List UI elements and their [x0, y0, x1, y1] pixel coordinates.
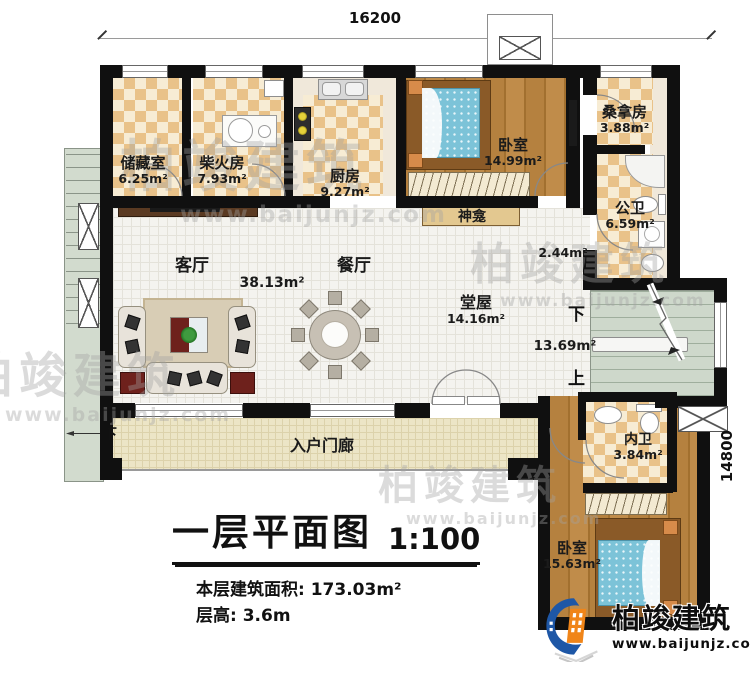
title-info: 本层建筑面积: 173.03m² 层高: 3.6m	[196, 577, 480, 630]
window	[205, 65, 263, 78]
window	[415, 65, 483, 78]
living-area: 38.13m²	[237, 275, 307, 291]
wall	[578, 392, 677, 402]
dining-chair	[328, 365, 342, 379]
top-dimension-value: 16200	[330, 9, 420, 27]
window	[122, 65, 168, 78]
stairs-down-label: 下	[568, 300, 585, 325]
window	[135, 404, 243, 417]
wall	[583, 483, 673, 493]
room-label-inner-bath: 内卫 3.84m²	[598, 432, 678, 462]
room-label-storage: 储藏室 6.25m²	[103, 155, 183, 187]
bedroom-top-area: 14.99m²	[473, 154, 553, 168]
kitchen-area: 9.27m²	[305, 185, 385, 199]
floor-height-line: 层高: 3.6m	[196, 603, 480, 629]
entry-door-leaf	[467, 396, 500, 405]
kitchen-name: 厨房	[305, 168, 385, 185]
plan-scale: 1:100	[388, 522, 480, 556]
bedroom-bottom-name: 卧室	[532, 540, 612, 557]
window	[600, 65, 652, 78]
living-name: 客厅	[162, 257, 222, 277]
plant	[181, 327, 197, 343]
window	[310, 404, 395, 417]
right-dimension-value: 14800	[718, 430, 736, 482]
wardrobe-top	[408, 172, 530, 198]
dining-table-top	[321, 321, 349, 348]
storage-area: 6.25m²	[103, 172, 183, 186]
window	[714, 302, 727, 368]
bedroom-bottom-area: 15.63m²	[532, 557, 612, 571]
tv-panel-hall	[569, 100, 577, 146]
storage-name: 储藏室	[103, 155, 183, 172]
room-label-hallway: 2.44m²	[523, 246, 603, 260]
dining-chair	[328, 291, 342, 305]
flue-xbox-under-stairs	[678, 406, 728, 432]
tv-screen	[150, 208, 220, 212]
dining-chair	[291, 328, 305, 342]
title-block: 一层平面图 1:100 本层建筑面积: 173.03m² 层高: 3.6m	[172, 502, 480, 630]
firewood-basin-large	[228, 118, 253, 143]
wall	[500, 403, 538, 418]
stair-handrail	[592, 337, 688, 352]
floor-plan-canvas: 16200 14800	[0, 0, 750, 674]
porch-edge-line	[100, 469, 538, 471]
stove-burner	[298, 126, 307, 135]
wall	[396, 78, 406, 196]
room-label-shrine: 神龛	[437, 209, 507, 225]
firewood-name: 柴火房	[182, 155, 262, 172]
firewood-basin-small	[258, 125, 271, 138]
room-label-dining: 餐厅	[319, 257, 389, 277]
sofa-pillow	[125, 339, 140, 354]
wall	[284, 78, 293, 196]
inner-bath-name: 内卫	[598, 432, 678, 448]
wall	[583, 65, 597, 95]
logo-name: 柏竣建筑	[612, 605, 750, 633]
wall	[100, 196, 330, 208]
nightstand	[663, 520, 678, 535]
stairs-area-label: 13.69m²	[525, 339, 605, 355]
hall-area: 14.16m²	[436, 312, 516, 326]
room-label-porch: 入户门廊	[242, 437, 402, 455]
bath-sink	[641, 254, 664, 272]
porch-corner-column	[100, 458, 122, 480]
bedroom-top-name: 卧室	[473, 137, 553, 154]
wall	[396, 196, 538, 208]
room-label-living: 客厅	[162, 257, 222, 277]
nightstand	[408, 153, 423, 168]
dining-name: 餐厅	[319, 257, 389, 277]
room-label-kitchen: 厨房 9.27m²	[305, 168, 385, 200]
shrine-name: 神龛	[437, 209, 507, 225]
inner-bath-sink	[594, 406, 622, 424]
wall	[243, 403, 310, 418]
baijun-logo-mark	[542, 594, 606, 662]
stairs-up-label: 上	[568, 364, 585, 389]
wall	[395, 403, 430, 418]
wall	[583, 278, 727, 290]
porch-corner-column	[508, 458, 538, 480]
logo-url: www.baijunjz.com	[612, 636, 750, 652]
left-pier-xbox-1	[78, 203, 99, 250]
plan-title: 一层平面图	[172, 502, 372, 556]
public-bath-area: 6.59m²	[590, 217, 670, 231]
hall-name: 堂屋	[436, 294, 516, 312]
wall	[714, 290, 727, 302]
wall	[667, 65, 680, 290]
room-label-bedroom-top: 卧室 14.99m²	[473, 137, 553, 169]
baijun-logo-block: 柏竣建筑 www.baijunjz.com	[542, 594, 750, 662]
baijun-logo-text: 柏竣建筑 www.baijunjz.com	[612, 605, 750, 652]
wardrobe-bottom	[585, 493, 667, 515]
dining-chair	[365, 328, 379, 342]
room-label-sauna: 桑拿房 3.88m²	[582, 104, 667, 136]
end-table-left	[120, 372, 145, 394]
wall	[100, 403, 135, 418]
living-area-label: 38.13m²	[237, 275, 307, 291]
porch-down-label: 下	[102, 423, 117, 444]
floor-area-line: 本层建筑面积: 173.03m²	[196, 577, 480, 603]
stove-burner	[298, 112, 307, 121]
left-pier-xbox-2	[78, 278, 99, 328]
porch-name: 入户门廊	[242, 437, 402, 455]
sink-basin	[322, 82, 341, 96]
nightstand	[408, 80, 423, 95]
wall	[597, 145, 645, 154]
sink-basin	[345, 82, 364, 96]
window	[302, 65, 364, 78]
inner-toilet-bowl	[640, 412, 659, 434]
room-label-hall: 堂屋 14.16m²	[436, 294, 516, 327]
public-bath-name: 公卫	[590, 200, 670, 217]
sofa-pillow	[167, 371, 182, 386]
stairwell-area: 13.69m²	[525, 339, 605, 355]
room-label-bedroom-bottom: 卧室 15.63m²	[532, 540, 612, 572]
sofa-pillow	[235, 339, 250, 354]
inner-bath-area: 3.84m²	[598, 448, 678, 462]
entry-door-leaf	[432, 396, 465, 405]
title-row: 一层平面图 1:100	[172, 502, 480, 565]
room-label-public-bath: 公卫 6.59m²	[590, 200, 670, 232]
room-label-firewood: 柴火房 7.93m²	[182, 155, 262, 187]
firewood-corner-flue	[264, 80, 284, 97]
top-dimension-line	[100, 38, 712, 39]
firewood-area: 7.93m²	[182, 172, 262, 186]
end-table-right	[230, 372, 255, 394]
sauna-name: 桑拿房	[582, 104, 667, 121]
hallway-area: 2.44m²	[523, 246, 603, 260]
chimney-flue-xbox	[499, 36, 541, 60]
wall	[578, 402, 586, 440]
sauna-area: 3.88m²	[582, 121, 667, 135]
